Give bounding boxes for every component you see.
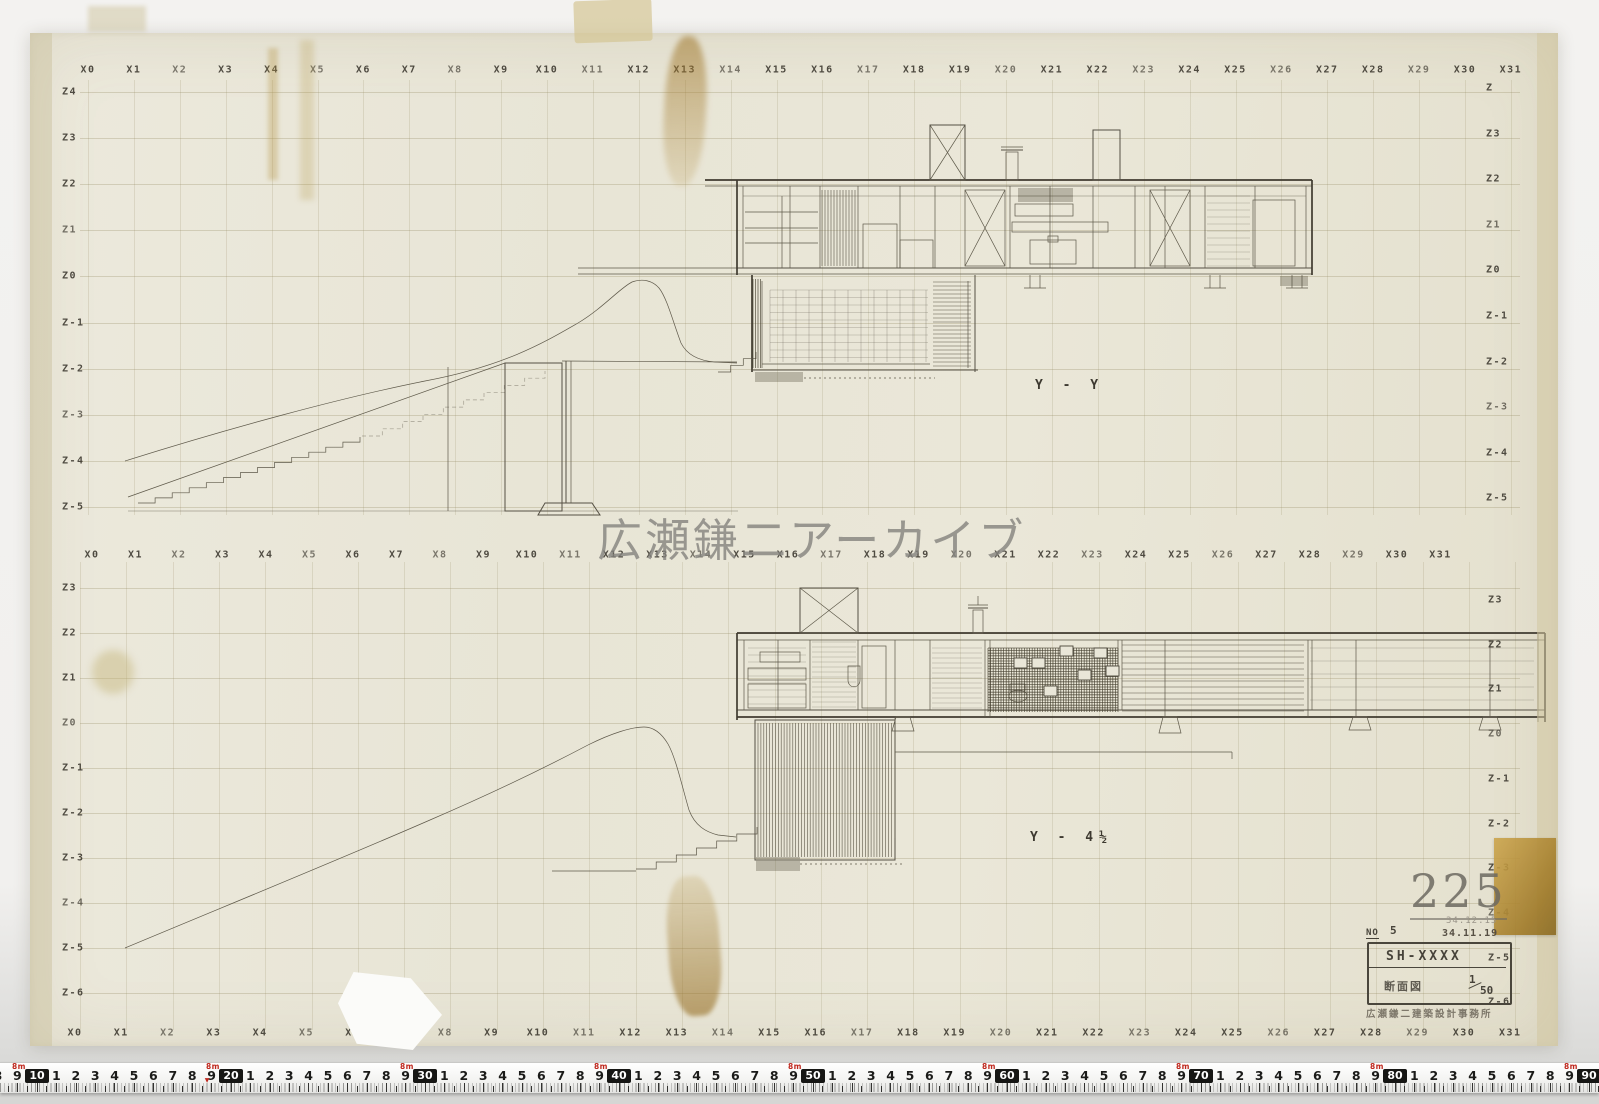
x-axis-label-top: X16 [811,65,834,76]
ruler-cm-tick [425,1083,426,1092]
ruler-cm-tick [134,1083,135,1092]
x-axis-label-top: X18 [903,65,926,76]
ruler-cm-tick [1511,1083,1512,1092]
x-axis-label-top: X9 [494,65,509,76]
ruler-halfcm-tick [1307,1086,1308,1092]
x-axis-label-top: X1 [126,65,141,76]
z-axis-label-lower-right: Z2 [1488,639,1503,650]
ruler-cm-tick [1492,1083,1493,1092]
x-axis-label-top: X30 [1454,65,1477,76]
z-axis-label-upper-left: Z4 [62,87,77,98]
ruler-digit: 2 [1235,1068,1244,1083]
z-axis-label-lower-left: Z0 [62,718,77,729]
ruler-digit: 4 [498,1068,507,1083]
ruler-digit: 4 [692,1068,701,1083]
z-axis-label-lower-left: Z-2 [62,808,85,819]
z-axis-label-lower-left: Z2 [62,628,77,639]
ruler-halfcm-tick [1560,1086,1561,1092]
x-axis-label-top: X28 [1362,65,1385,76]
ruler-digit: 8 [964,1068,973,1083]
ruler-cm-tick [289,1083,290,1092]
x-axis-label-bottom: X15 [758,1028,781,1039]
ruler-cm-tick [76,1083,77,1092]
ruler-digit: 6 [149,1068,158,1083]
ruler-cm-tick [1240,1083,1241,1092]
ruler-cm-box: 10 [25,1069,49,1083]
ruler-cm-tick [774,1083,775,1092]
ruler-meter-label: 8m [594,1062,608,1071]
ruler-cm-tick [949,1083,950,1092]
ruler-halfcm-tick [1016,1086,1017,1092]
ruler-digit: 8 [576,1068,585,1083]
ruler-meter-label: 8m [1370,1062,1384,1071]
x-axis-label-bottom: X19 [943,1028,966,1039]
z-axis-label-lower-left: Z3 [62,583,77,594]
ruler-digit: 8 [382,1068,391,1083]
x-axis-label-bottom: X5 [299,1028,314,1039]
ruler-digit: 6 [1313,1068,1322,1083]
x-axis-label-bottom: X29 [1406,1028,1429,1039]
ruler-digit: 8 [188,1068,197,1083]
z-axis-label-upper-right: Z-2 [1486,356,1509,367]
ruler-cm-tick [1026,1083,1027,1092]
x-axis-label-bottom: X28 [1360,1028,1383,1039]
ruler-halfcm-tick [202,1086,203,1092]
x-axis-label-middle: X3 [215,550,230,561]
z-axis-label-upper-left: Z-2 [62,363,85,374]
ruler-digit: 2 [847,1068,856,1083]
sheet-number-stamp: 225 [1410,864,1507,918]
ruler-cm-tick [1375,1083,1376,1092]
ruler-cm-tick [250,1083,251,1092]
timber-wall-hatch [758,723,891,857]
x-axis-label-top: X25 [1224,65,1247,76]
ruler-halfcm-tick [1094,1086,1095,1092]
no-label: NO [1366,928,1379,939]
ruler-digit: 1 [1410,1068,1419,1083]
ruler-cm-tick [696,1083,697,1092]
x-axis-label-top: X31 [1500,65,1523,76]
x-axis-label-top: X8 [448,65,463,76]
z-axis-label-lower-right: Z1 [1488,684,1503,695]
window-opening [1060,646,1073,656]
ruler-cm-tick [793,1083,794,1092]
ruler-halfcm-tick [396,1086,397,1092]
ruler-digit: 1 [246,1068,255,1083]
ruler-halfcm-tick [1579,1086,1580,1092]
ruler-cm-tick [580,1083,581,1092]
ruler-digit: 5 [518,1068,527,1083]
ruler-halfcm-tick [939,1086,940,1092]
x-axis-label-top: X17 [857,65,880,76]
x-axis-label-top: X27 [1316,65,1339,76]
ruler-digit: 8 [1158,1068,1167,1083]
ruler-cm-tick [1278,1083,1279,1092]
ruler-cm-tick [929,1083,930,1092]
ruler-cm-tick [561,1083,562,1092]
ruler-halfcm-tick [803,1086,804,1092]
x-axis-label-top: X0 [80,65,95,76]
ruler-cm-tick [658,1083,659,1092]
x-axis-label-top: X6 [356,65,371,76]
bathroom-door [862,646,886,708]
ruler-halfcm-tick [1113,1086,1114,1092]
ruler-cm-tick [832,1083,833,1092]
ruler-halfcm-tick [628,1086,629,1092]
ruler-halfcm-tick [1269,1086,1270,1092]
ruler-cm-tick [852,1083,853,1092]
ruler-halfcm-tick [1075,1086,1076,1092]
x-axis-label-middle: X4 [258,550,273,561]
x-axis-label-top: X13 [673,65,696,76]
ruler-digit: 6 [1119,1068,1128,1083]
ruler-cm-tick [1104,1083,1105,1092]
ruler-halfcm-tick [376,1086,377,1092]
ruler-halfcm-tick [861,1086,862,1092]
x-axis-label-bottom: X16 [805,1028,828,1039]
x-axis-label-bottom: X26 [1268,1028,1291,1039]
ruler-halfcm-tick [1191,1086,1192,1092]
ruler-cm-tick [502,1083,503,1092]
x-axis-label-bottom: X30 [1453,1028,1476,1039]
ruler-halfcm-tick [687,1086,688,1092]
x-axis-label-middle: X30 [1386,550,1409,561]
roof-tower [1093,130,1120,180]
ruler-cm-tick [968,1083,969,1092]
window-opening [1014,658,1027,668]
x-axis-label-middle: X25 [1168,550,1191,561]
ruler-digit: 5 [324,1068,333,1083]
ruler-cm-tick [1550,1083,1551,1092]
ruler-cm-box: 60 [995,1069,1019,1083]
ruler-cm-tick [308,1083,309,1092]
no-value: 5 [1390,924,1397,937]
ruler-halfcm-tick [1521,1086,1522,1092]
scale-denominator: 50 [1480,984,1493,997]
ruler-cm-tick [1317,1083,1318,1092]
ruler-cm-tick [890,1083,891,1092]
z-axis-label-upper-left: Z1 [62,225,77,236]
room-panel-hatch [770,290,928,358]
ruler-halfcm-tick [997,1086,998,1092]
ruler-cm-box: 90 [1577,1069,1599,1083]
ruler-halfcm-tick [978,1086,979,1092]
ruler-halfcm-tick [1482,1086,1483,1092]
ruler-digit: 5 [906,1068,915,1083]
ruler-cm-tick [1395,1083,1396,1092]
ruler-halfcm-tick [105,1086,106,1092]
ruler-halfcm-tick [609,1086,610,1092]
ruler-digit: 3 [285,1068,294,1083]
ruler-halfcm-tick [221,1086,222,1092]
window-opening [1106,666,1119,676]
ruler-cm-box: 30 [413,1069,437,1083]
x-axis-label-top: X22 [1087,65,1110,76]
wall-hatch [753,279,761,368]
ruler-digit: 2 [1429,1068,1438,1083]
ruler-halfcm-tick [1230,1086,1231,1092]
roof-stair-bulkhead [800,588,858,633]
ruler-halfcm-tick [1463,1086,1464,1092]
x-axis-label-bottom: X10 [527,1028,550,1039]
ruler-digit: 1 [1022,1068,1031,1083]
ruler-halfcm-tick [124,1086,125,1092]
ruler-halfcm-tick [1210,1086,1211,1092]
ruler-halfcm-tick [8,1086,9,1092]
ruler-halfcm-tick [745,1086,746,1092]
ruler-digit: 8 [770,1068,779,1083]
ruler-halfcm-tick [27,1086,28,1092]
ruler-cm-box: 80 [1383,1069,1407,1083]
ruler-halfcm-tick [299,1086,300,1092]
ruler-cm-tick [735,1083,736,1092]
ruler-digit: 6 [343,1068,352,1083]
ruler-halfcm-tick [143,1086,144,1092]
ruler-digit: 7 [556,1068,565,1083]
ruler-digit: 6 [925,1068,934,1083]
ruler-cm-tick [677,1083,678,1092]
ruler-halfcm-tick [85,1086,86,1092]
x-axis-label-top: X14 [719,65,742,76]
z-axis-label-lower-left: Z-4 [62,898,85,909]
z-axis-label-lower-left: Z-5 [62,943,85,954]
x-axis-label-bottom: X8 [438,1028,453,1039]
z-axis-label-upper-right: Z2 [1486,174,1501,185]
x-axis-label-bottom: X17 [851,1028,874,1039]
ruler-halfcm-tick [1172,1086,1173,1092]
ruler-halfcm-tick [842,1086,843,1092]
wall-board-hatch [1207,196,1250,266]
ruler-cm-tick [17,1083,18,1092]
door-panel [1253,200,1295,266]
ruler-digit: 4 [886,1068,895,1083]
ruler-cm-tick [173,1083,174,1092]
ruler-halfcm-tick [1385,1086,1386,1092]
ruler-cm-tick [1453,1083,1454,1092]
ruler-halfcm-tick [337,1086,338,1092]
ruler-digit: 7 [1526,1068,1535,1083]
ruler-digit: 6 [1507,1068,1516,1083]
window-opening [1078,670,1091,680]
column-footing [538,503,600,515]
ruler-digit: 6 [537,1068,546,1083]
ruler-halfcm-tick [357,1086,358,1092]
ruler-halfcm-tick [163,1086,164,1092]
ruler-halfcm-tick [648,1086,649,1092]
x-axis-label-middle: X23 [1081,550,1104,561]
ruler-digit: 1 [52,1068,61,1083]
ruler-digit: 3 [479,1068,488,1083]
z-axis-label-upper-left: Z3 [62,133,77,144]
x-axis-label-bottom: X21 [1036,1028,1059,1039]
ruler-halfcm-tick [66,1086,67,1092]
x-axis-label-middle: X27 [1255,550,1278,561]
x-axis-label-bottom: X25 [1221,1028,1244,1039]
ruler-halfcm-tick [1424,1086,1425,1092]
ruler-digit: 3 [91,1068,100,1083]
x-axis-label-middle: X26 [1212,550,1235,561]
x-axis-label-top: X19 [949,65,972,76]
roof-stair-bulkhead [930,125,965,180]
measuring-tape: 898m101234567898m201234567898m3012345678… [0,1062,1599,1093]
ruler-halfcm-tick [279,1086,280,1092]
ruler-digit: 5 [1488,1068,1497,1083]
ruler-cm-tick [1569,1083,1570,1092]
x-axis-label-bottom: X20 [990,1028,1013,1039]
ruler-digit: 5 [1294,1068,1303,1083]
ruler-digit: 4 [304,1068,313,1083]
ruler-cm-tick [871,1083,872,1092]
ruler-meter-label: 8m [788,1062,802,1071]
ruler-halfcm-tick [725,1086,726,1092]
ruler-cm-tick [192,1083,193,1092]
x-axis-label-middle: X22 [1038,550,1061,561]
x-axis-label-bottom: X6 [345,1028,360,1039]
x-axis-label-middle: X10 [516,550,539,561]
ruler-cm-tick [1472,1083,1473,1092]
ruler-digit: 8 [1546,1068,1555,1083]
ruler-halfcm-tick [493,1086,494,1092]
z-axis-label-upper-right: Z-4 [1486,447,1509,458]
ruler-digit: 5 [712,1068,721,1083]
x-axis-label-bottom: X14 [712,1028,735,1039]
lower-section-label: Y - 4½ [1030,830,1113,845]
date-stamp: 34.11.19 [1442,928,1498,939]
x-axis-label-middle: X9 [476,550,491,561]
x-axis-label-top: X21 [1041,65,1064,76]
x-axis-label-middle: X11 [559,550,582,561]
z-axis-label-lower-left: Z1 [62,673,77,684]
wall-board-hatch [812,642,856,707]
ruler-cm-tick [599,1083,600,1092]
ruler-cm-tick [813,1083,814,1092]
z-axis-label-lower-right: Z3 [1488,595,1503,606]
ruler-halfcm-tick [46,1086,47,1092]
ruler-halfcm-tick [454,1086,455,1092]
x-axis-label-middle: X29 [1342,550,1365,561]
ruler-halfcm-tick [1501,1086,1502,1092]
ruler-cm-tick [1589,1083,1590,1092]
x-axis-label-bottom: X2 [160,1028,175,1039]
z-axis-label-lower-right: Z-1 [1488,773,1511,784]
ruler-halfcm-tick [881,1086,882,1092]
ruler-cm-tick [1084,1083,1085,1092]
ruler-cm-tick [1531,1083,1532,1092]
ruler-red-marker: ▼ [205,1077,210,1084]
ruler-cm-tick [1434,1083,1435,1092]
z-axis-label-upper-left: Z2 [62,179,77,190]
scanned-drawing-page: X0X1X2X3X4X5X6X7X8X9X10X11X12X13X14X15X1… [0,0,1599,1104]
window-opening [1032,658,1045,668]
ruler-cm-tick [211,1083,212,1092]
ruler-cm-tick [56,1083,57,1092]
ruler-cm-tick [619,1083,620,1092]
x-axis-label-top: X5 [310,65,325,76]
stair-shaft-hatch [822,190,855,266]
ruler-halfcm-tick [1327,1086,1328,1092]
footing-hatch [755,373,803,381]
ruler-cm-tick [1007,1083,1008,1092]
x-axis-label-top: X10 [536,65,559,76]
ruler-digit: 6 [731,1068,740,1083]
ruler-meter-label: 8m [1564,1062,1578,1071]
x-axis-label-bottom: X24 [1175,1028,1198,1039]
z-axis-label-upper-right: Z [1486,83,1494,94]
z-axis-label-upper-right: Z3 [1486,128,1501,139]
x-axis-label-top: X20 [995,65,1018,76]
ruler-digit: 2 [71,1068,80,1083]
x-axis-label-top: X7 [402,65,417,76]
x-axis-label-bottom: X31 [1499,1028,1522,1039]
ruler-cm-tick [910,1083,911,1092]
ruler-digit: 2 [1041,1068,1050,1083]
ruler-cm-tick [231,1083,232,1092]
ruler-cm-box: 40 [607,1069,631,1083]
x-axis-label-middle: X31 [1429,550,1452,561]
ruler-halfcm-tick [182,1086,183,1092]
drawing-type: 断面図 [1384,978,1423,994]
ruler-cm-box: 50 [801,1069,825,1083]
footing-hatch [1280,277,1308,285]
room-panel-hatch [770,290,926,362]
x-axis-label-bottom: X7 [392,1028,407,1039]
ruler-halfcm-tick [1443,1086,1444,1092]
z-axis-label-lower-left: Z-6 [62,988,85,999]
project-code: SH-XXXX [1386,949,1462,964]
ruler-cm-tick [987,1083,988,1092]
ruler-digit: 7 [944,1068,953,1083]
ruler-digit: 2 [265,1068,274,1083]
x-axis-label-top: X29 [1408,65,1431,76]
ruler-digit: 1 [828,1068,837,1083]
ruler-digit: 3 [1449,1068,1458,1083]
ruler-digit: 7 [362,1068,371,1083]
ruler-digit: 7 [168,1068,177,1083]
ruler-digit: 1 [1216,1068,1225,1083]
z-axis-label-upper-left: Z-4 [62,455,85,466]
ruler-halfcm-tick [318,1086,319,1092]
ruler-meter-label: 8m [12,1062,26,1071]
z-axis-label-upper-left: Z0 [62,271,77,282]
title-block-divider [1369,967,1506,968]
ruler-cm-tick [1181,1083,1182,1092]
x-axis-label-bottom: X1 [114,1028,129,1039]
ruler-digit: 4 [1468,1068,1477,1083]
z-axis-label-upper-left: Z-1 [62,317,85,328]
ruler-cm-tick [541,1083,542,1092]
ruler-halfcm-tick [531,1086,532,1092]
ruler-halfcm-tick [784,1086,785,1092]
z-axis-label-upper-right: Z-5 [1486,493,1509,504]
ruler-digit: 4 [1080,1068,1089,1083]
ruler-halfcm-tick [551,1086,552,1092]
ruler-cm-tick [1065,1083,1066,1092]
x-axis-label-top: X2 [172,65,187,76]
ruler-halfcm-tick [900,1086,901,1092]
ruler-halfcm-tick [473,1086,474,1092]
ruler-cm-tick [1201,1083,1202,1092]
ruler-halfcm-tick [260,1086,261,1092]
z-axis-label-lower-right: Z0 [1488,729,1503,740]
wall-board-hatch [932,648,982,708]
z-axis-label-lower-left: Z-1 [62,763,85,774]
ruler-digit: 1 [634,1068,643,1083]
z-axis-label-upper-left: Z-3 [62,409,85,420]
ruler-meter-label: 8m [206,1062,220,1071]
ruler-digit: 7 [1332,1068,1341,1083]
z-axis-label-upper-right: Z0 [1486,265,1501,276]
ruler-cm-tick [347,1083,348,1092]
